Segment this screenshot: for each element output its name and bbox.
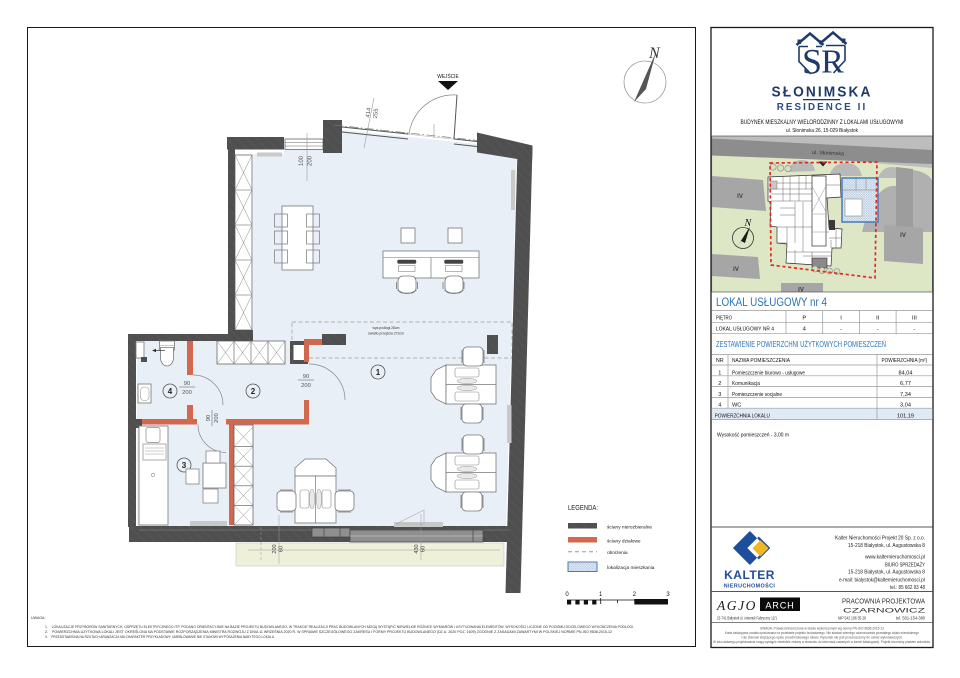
svg-text:3. PRZEDSTAWIONA NA RZUTACH: 3. PRZEDSTAWIONA NA RZUTACH ARANŻACJA MA… [45, 634, 275, 639]
svg-text:4: 4 [168, 387, 173, 396]
svg-text:Pomieszczenie socjalne: Pomieszczenie socjalne [732, 392, 782, 398]
svg-text:SŁONIMSKA: SŁONIMSKA [772, 85, 873, 101]
svg-text:90: 90 [303, 374, 309, 380]
svg-text:IV: IV [733, 267, 739, 273]
svg-text:60: 60 [279, 546, 285, 552]
svg-text:ARCH: ARCH [765, 600, 794, 610]
svg-text:UWAGA:: UWAGA: [31, 616, 45, 620]
svg-text:LOKAL USŁUGOWY nr 4: LOKAL USŁUGOWY nr 4 [716, 295, 827, 309]
svg-text:tel. 501-154-380: tel. 501-154-380 [896, 616, 926, 621]
svg-text:15-218 Białystok, ul. Augustow: 15-218 Białystok, ul. Augustowska 8 [848, 570, 925, 576]
svg-text:obniżenia: obniżenia [607, 550, 628, 556]
svg-text:3: 3 [718, 392, 721, 398]
svg-text:POWIERZCHNIA (m²): POWIERZCHNIA (m²) [882, 358, 928, 364]
svg-text:wys.podłogi 28cm: wys.podłogi 28cm [373, 326, 400, 330]
svg-text:N: N [744, 218, 753, 229]
svg-text:AGJO: AGJO [716, 599, 757, 614]
svg-text:P: P [802, 316, 806, 322]
svg-text:II: II [876, 316, 880, 322]
svg-text:3: 3 [182, 461, 187, 470]
svg-text:IV: IV [900, 233, 906, 239]
svg-text:90: 90 [184, 381, 190, 387]
svg-text:ściany nierozbieralne: ściany nierozbieralne [607, 525, 652, 531]
svg-text:IV: IV [737, 194, 743, 200]
svg-text:www.kalternieruchomosci.pl: www.kalternieruchomosci.pl [865, 555, 925, 561]
svg-text:BIURO SPRZEDAŻY: BIURO SPRZEDAŻY [885, 561, 925, 568]
svg-text:101,19: 101,19 [897, 414, 914, 420]
svg-text:tel.: 85 662 93 48: tel.: 85 662 93 48 [890, 585, 925, 591]
svg-text:200: 200 [272, 544, 278, 553]
svg-text:Kalter Nieruchomości Projekt 2: Kalter Nieruchomości Projekt 20 Sp. z o.… [835, 536, 925, 542]
svg-text:15-218 Białystok, ul. Augustow: 15-218 Białystok, ul. Augustowska 8 [848, 543, 925, 549]
svg-text:60: 60 [421, 546, 427, 552]
svg-text:ul. Słonimska 26, 15-029 Biały: ul. Słonimska 26, 15-029 Białystok [786, 128, 858, 134]
svg-text:ZESTAWIENIE POWIERZCHNI UŻYTKO: ZESTAWIENIE POWIERZCHNI UŻYTKOWYCH POMIE… [716, 340, 886, 349]
svg-text:200: 200 [301, 383, 311, 389]
svg-text:NIERUCHOMOŚCI: NIERUCHOMOŚCI [724, 583, 776, 590]
svg-text:Pomieszczenie biurowo - usługo: Pomieszczenie biurowo - usługowe [732, 370, 805, 376]
svg-text:NIP 542 198 35 26: NIP 542 198 35 26 [838, 616, 867, 621]
svg-text:RESIDENCE II: RESIDENCE II [777, 102, 868, 113]
svg-text:Wysokość pomieszczeń - 3,00 m: Wysokość pomieszczeń - 3,00 m [717, 433, 789, 439]
svg-text:III: III [912, 316, 917, 322]
svg-text:430: 430 [414, 544, 420, 553]
svg-text:e-mail: bialystok@kalternieruc: e-mail: bialystok@kalternieruchomosci.pl [839, 578, 925, 584]
svg-text:-: - [840, 327, 842, 333]
svg-text:WEJŚCIE: WEJŚCIE [437, 72, 459, 80]
svg-text:LOKAL USŁUGOWY NR 4: LOKAL USŁUGOWY NR 4 [716, 327, 774, 333]
svg-text:2: 2 [251, 387, 256, 396]
svg-text:200: 200 [214, 413, 220, 423]
svg-text:90: 90 [206, 415, 212, 421]
svg-text:1: 1 [376, 368, 381, 377]
svg-text:Komunikacja: Komunikacja [732, 381, 761, 387]
svg-text:WC: WC [732, 403, 741, 409]
svg-text:4: 4 [718, 403, 721, 409]
svg-text:N: N [648, 45, 661, 62]
svg-text:S: S [802, 42, 822, 82]
svg-text:-: - [877, 327, 879, 333]
svg-text:i nie stanowi wiążącego opisu: i nie stanowi wiążącego opisu przedmioto… [741, 636, 903, 640]
svg-text:POWIERZCHNIA LOKALU: POWIERZCHNIA LOKALU [715, 414, 770, 420]
svg-text:-: - [913, 327, 915, 333]
svg-text:NR: NR [716, 358, 724, 364]
svg-text:7,34: 7,34 [900, 392, 911, 398]
svg-text:1. LOKALIZACJE PRZYBORÓW SA: 1. LOKALIZACJE PRZYBORÓW SANITARNYCH, OS… [45, 624, 634, 629]
svg-text:CZARNOWICZ: CZARNOWICZ [843, 608, 925, 615]
svg-text:6,77: 6,77 [900, 381, 911, 387]
svg-text:200: 200 [308, 155, 314, 166]
svg-text:Karta katalogowa została oprac: Karta katalogowa została opracowana na p… [725, 631, 919, 635]
svg-text:200: 200 [182, 390, 192, 396]
svg-text:LEGENDA:: LEGENDA: [568, 505, 598, 512]
svg-text:W toku dalszego projektowania: W toku dalszego projektowania mogą wystą… [713, 640, 931, 644]
svg-text:1: 1 [718, 370, 721, 376]
svg-text:lokalizacja mieszkania: lokalizacja mieszkania [607, 565, 655, 571]
svg-text:BUDYNEK MIESZKALNY WIELORODZIN: BUDYNEK MIESZKALNY WIELORODZINNY Z LOKAL… [741, 119, 904, 126]
svg-text:84,04: 84,04 [899, 370, 913, 376]
svg-text:15-741 Białystok ul. Antoniu: 15-741 Białystok ul. Antoniuk Fabryczny … [717, 616, 777, 621]
svg-text:KALTER: KALTER [724, 568, 775, 582]
svg-text:UWAGA: Powierzchnia liczona: UWAGA: Powierzchnia liczona w stanie wyk… [760, 627, 884, 631]
svg-text:PIĘTRO: PIĘTRO [716, 316, 732, 322]
svg-text:3,04: 3,04 [900, 403, 911, 409]
svg-text:100: 100 [299, 155, 305, 166]
svg-text:światło przejścia 272cm: światło przejścia 272cm [368, 332, 404, 336]
svg-text:R: R [821, 44, 844, 81]
svg-text:2. POWIERZCHNIA UŻYTKOWA LO: 2. POWIERZCHNIA UŻYTKOWA LOKALI JEST OKR… [45, 629, 612, 634]
svg-text:2: 2 [718, 381, 721, 387]
svg-text:PRACOWNIA PROJEKTOWA: PRACOWNIA PROJEKTOWA [842, 599, 925, 606]
svg-text:NAZWA POMIESZCZENIA: NAZWA POMIESZCZENIA [732, 358, 790, 364]
svg-text:ściany działowe: ściany działowe [607, 539, 641, 545]
